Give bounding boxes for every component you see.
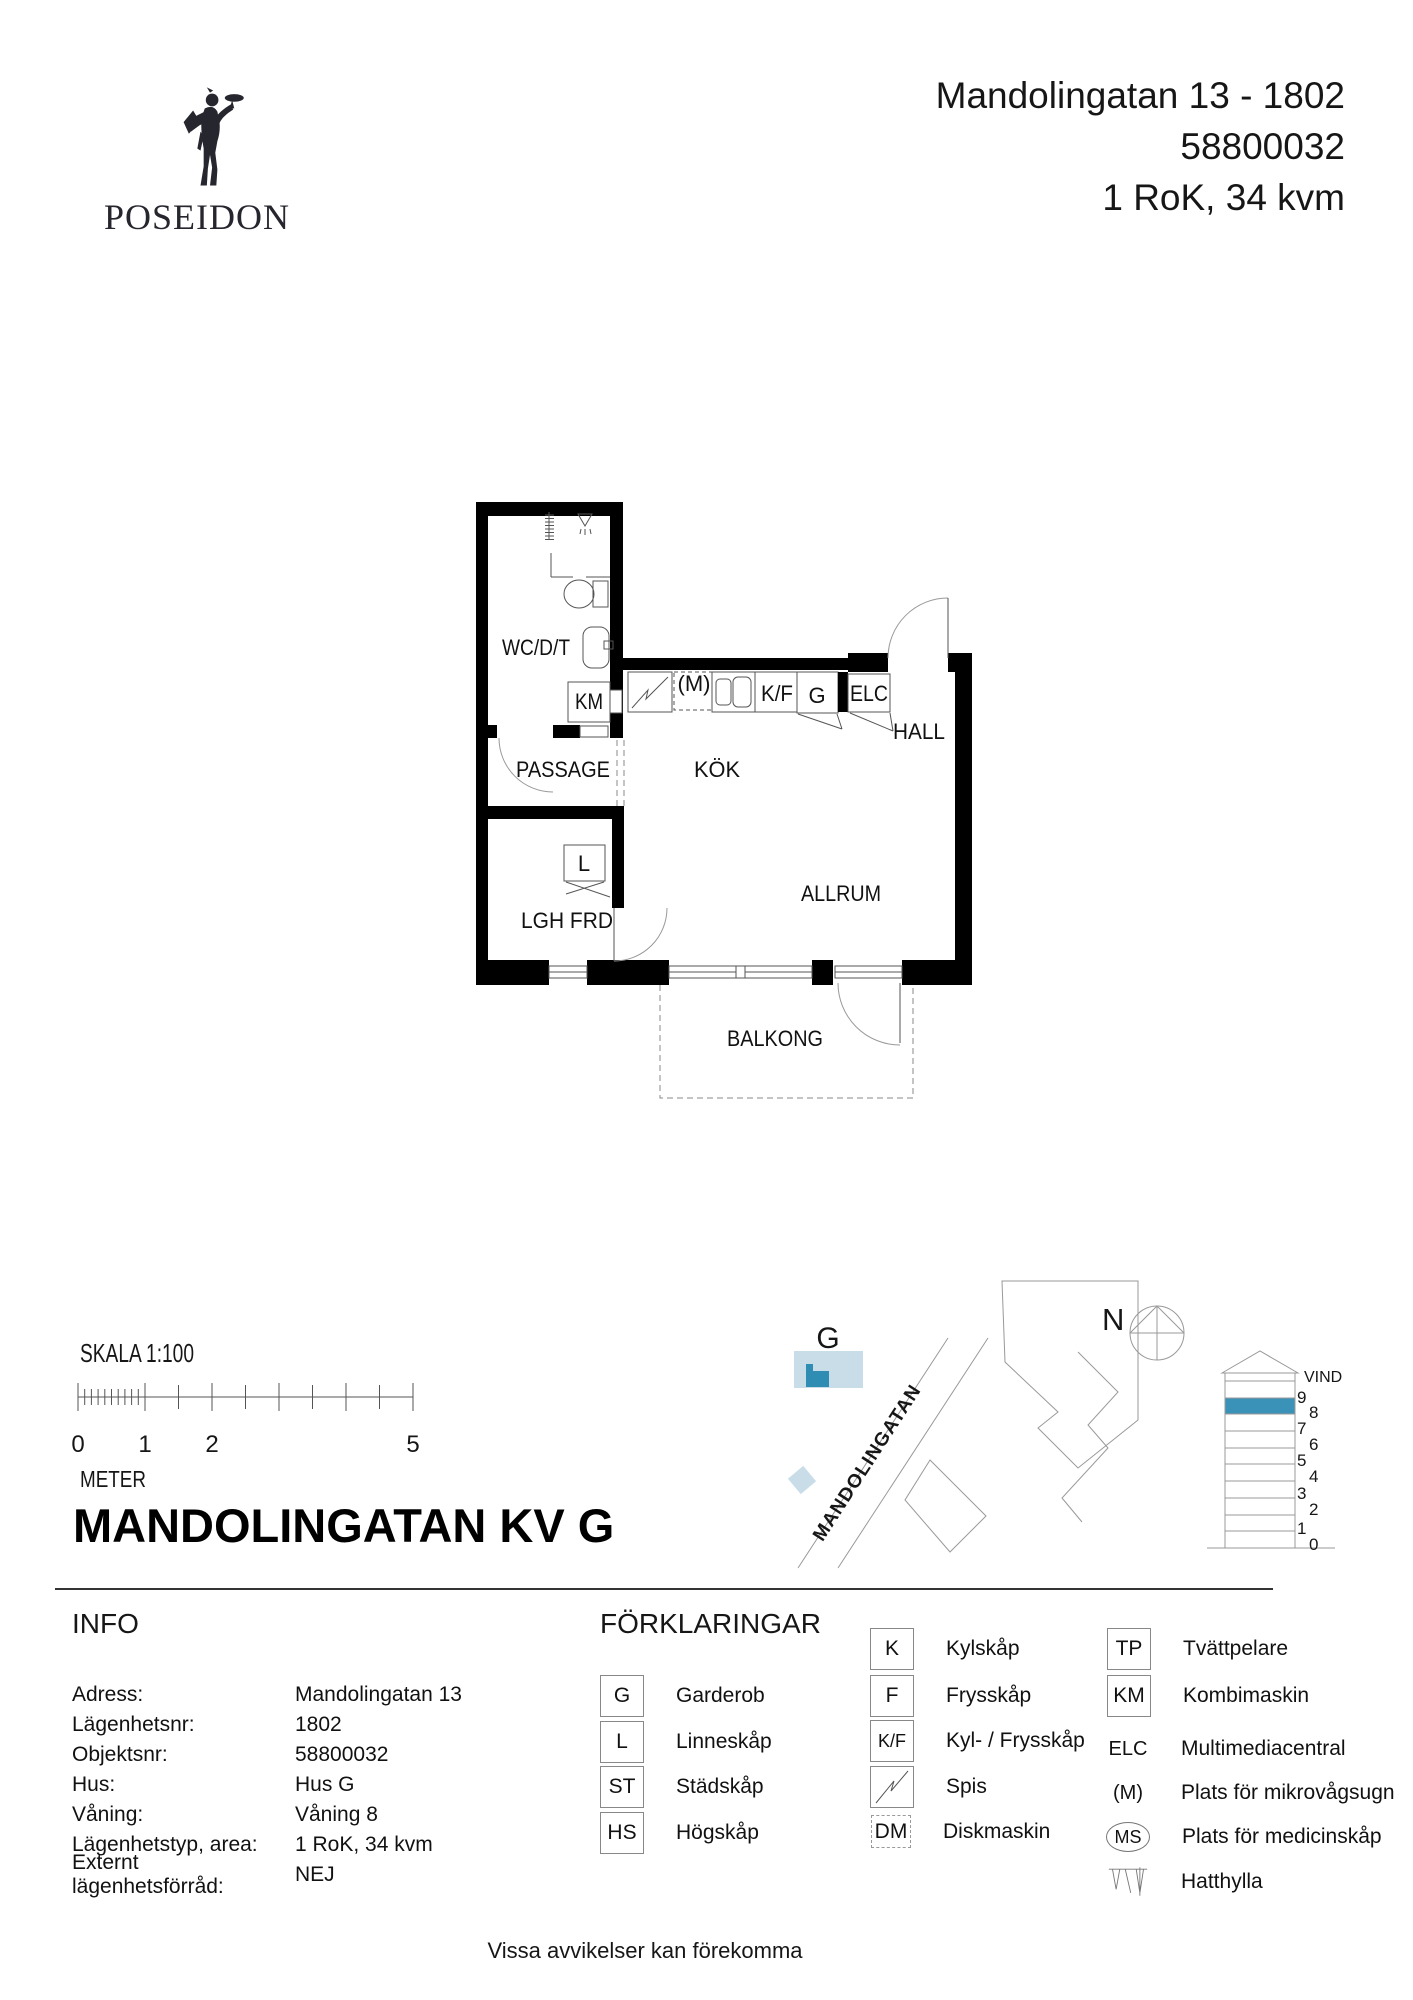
apartment-header: Mandolingatan 13 - 1802 58800032 1 RoK, … <box>936 70 1345 223</box>
floor-number: 9 <box>1297 1388 1306 1407</box>
info-label: Objektsnr: <box>72 1743 295 1767</box>
info-row: Hus:Hus G <box>72 1770 462 1800</box>
legend-label: Kombimaskin <box>1183 1684 1309 1708</box>
legend-label: Multimediacentral <box>1181 1737 1346 1761</box>
floor-number: 8 <box>1309 1403 1318 1422</box>
legend-symbol-hs: HS <box>600 1812 644 1854</box>
legend-label: Kylskåp <box>946 1637 1020 1661</box>
floor-number: 3 <box>1297 1484 1306 1503</box>
hat-shelf-symbol-icon <box>1107 1864 1149 1900</box>
info-value: 1 RoK, 34 kvm <box>295 1833 433 1857</box>
info-row: Adress:Mandolingatan 13 <box>72 1680 462 1710</box>
legend-symbol-g: G <box>600 1675 644 1717</box>
legend-symbol-l: L <box>600 1721 644 1763</box>
legend-symbol-elc: ELC <box>1107 1738 1149 1761</box>
brand-wordmark: POSEIDON <box>92 196 302 238</box>
room-label-l: L <box>578 851 590 876</box>
scale-numbers: 0 1 2 5 <box>71 1431 419 1458</box>
legend-label: Städskåp <box>676 1775 764 1799</box>
info-value: Hus G <box>295 1773 355 1797</box>
info-row: Objektsnr:58800032 <box>72 1740 462 1770</box>
legend-symbol-km: KM <box>1107 1675 1151 1717</box>
legend-heading: FÖRKLARINGAR <box>600 1608 821 1640</box>
legend-item: (M)Plats för mikrovågsugn <box>1107 1781 1395 1805</box>
room-label-g: G <box>808 683 825 708</box>
room-label-kf: K/F <box>761 681 793 706</box>
scale-unit: METER <box>80 1466 146 1492</box>
street-name-label: MANDOLINGATAN <box>809 1381 926 1545</box>
scale-label: SKALA 1:100 <box>80 1338 194 1368</box>
info-label: Våning: <box>72 1803 295 1827</box>
small-building-footprint <box>788 1466 816 1494</box>
scale-number-1: 1 <box>138 1431 151 1458</box>
legend-label: Diskmaskin <box>943 1820 1050 1844</box>
header-address: Mandolingatan 13 - 1802 <box>936 70 1345 121</box>
legend-label: Tvättpelare <box>1183 1637 1288 1661</box>
floor-plan: WC/D/T KM PASSAGE LGH FRD L KÖK (M) K/F … <box>450 480 990 1120</box>
section-divider <box>55 1588 1273 1590</box>
stove-symbol-icon <box>870 1766 914 1808</box>
site-map: MANDOLINGATAN G N VIND 9 8 7 6 5 4 3 <box>580 1278 1360 1578</box>
info-heading: INFO <box>72 1608 139 1640</box>
legend-item: KMKombimaskin <box>1107 1675 1309 1717</box>
legend-item: FFrysskåp <box>870 1675 1031 1717</box>
info-row: Externt lägenhetsförråd:NEJ <box>72 1860 462 1890</box>
legend-item: Hatthylla <box>1107 1864 1263 1900</box>
legend-item: KKylskåp <box>870 1628 1020 1670</box>
scale-number-0: 0 <box>71 1431 84 1458</box>
poseidon-statue-icon <box>172 86 248 190</box>
room-label-allrum: ALLRUM <box>801 881 881 906</box>
legend-symbol-ms: MS <box>1106 1822 1150 1852</box>
room-label-elc: ELC <box>850 681 888 706</box>
legend-item: DMDiskmaskin <box>871 1815 1050 1848</box>
floorplan-document-page: POSEIDON Mandolingatan 13 - 1802 5880003… <box>0 0 1413 2000</box>
scale-number-2: 2 <box>205 1431 218 1458</box>
legend-symbol-kf: K/F <box>870 1720 914 1762</box>
page-title: MANDOLINGATAN KV G <box>73 1498 614 1553</box>
info-row: Lägenhetsnr:1802 <box>72 1710 462 1740</box>
legend-item: K/FKyl- / Frysskåp <box>870 1720 1085 1762</box>
legend-symbol-m: (M) <box>1107 1782 1149 1805</box>
room-label-lghfrd: LGH FRD <box>521 908 613 933</box>
legend-label: Plats för mikrovågsugn <box>1181 1781 1395 1805</box>
legend-label: Kyl- / Frysskåp <box>946 1729 1085 1753</box>
room-label-km: KM <box>575 689 603 714</box>
legend-item: HSHögskåp <box>600 1812 759 1854</box>
legend-label: Plats för medicinskåp <box>1182 1825 1382 1849</box>
floor-number: 4 <box>1309 1467 1318 1486</box>
room-label-kok: KÖK <box>694 757 740 782</box>
legend-label: Spis <box>946 1775 987 1799</box>
floor-number: 1 <box>1297 1519 1306 1538</box>
disclaimer-text: Vissa avvikelser kan förekomma <box>0 1938 1290 1964</box>
legend-item: TPTvättpelare <box>1107 1628 1288 1670</box>
scale-bar: SKALA 1:100 0 1 2 5 METER <box>55 1332 505 1502</box>
elevation-attic-label: VIND <box>1304 1369 1342 1386</box>
legend-symbol-tp: TP <box>1107 1628 1151 1670</box>
floor-number: 5 <box>1297 1451 1306 1470</box>
highlighted-floor-band <box>1225 1398 1295 1414</box>
room-label-passage: PASSAGE <box>516 757 610 782</box>
legend-label: Hatthylla <box>1181 1870 1263 1894</box>
room-label-balkong: BALKONG <box>727 1026 823 1051</box>
legend-symbol-f: F <box>870 1675 914 1717</box>
floor-number: 7 <box>1297 1419 1306 1438</box>
info-value: Mandolingatan 13 <box>295 1683 462 1707</box>
legend-label: Frysskåp <box>946 1684 1031 1708</box>
room-label-wc: WC/D/T <box>502 635 570 660</box>
info-value: NEJ <box>295 1863 335 1887</box>
legend-item: MSPlats för medicinskåp <box>1106 1822 1382 1852</box>
info-table: Adress:Mandolingatan 13 Lägenhetsnr:1802… <box>72 1680 462 1890</box>
legend-item: GGarderob <box>600 1675 765 1717</box>
room-label-hall: HALL <box>893 719 945 744</box>
legend-symbol-st: ST <box>600 1766 644 1808</box>
legend-symbol-k: K <box>870 1628 914 1670</box>
scale-number-5: 5 <box>406 1431 419 1458</box>
header-object-number: 58800032 <box>936 121 1345 172</box>
legend-label: Linneskåp <box>676 1730 772 1754</box>
building-g-label: G <box>816 1322 839 1355</box>
floor-number: 0 <box>1309 1535 1318 1554</box>
room-label-m: (M) <box>678 671 711 696</box>
legend-label: Högskåp <box>676 1821 759 1845</box>
neighbour-building <box>905 1460 986 1552</box>
elevation-floor-numbers: VIND 9 8 7 6 5 4 3 2 1 0 <box>1297 1369 1342 1554</box>
legend-label: Garderob <box>676 1684 765 1708</box>
header-apartment-type: 1 RoK, 34 kvm <box>936 172 1345 223</box>
info-label: Lägenhetsnr: <box>72 1713 295 1737</box>
floor-number: 2 <box>1309 1500 1318 1519</box>
compass-icon <box>1130 1306 1184 1360</box>
legend-item: LLinneskåp <box>600 1721 772 1763</box>
legend-symbol-dm: DM <box>871 1815 911 1848</box>
compass-north-label: N <box>1102 1302 1124 1337</box>
info-label: Externt lägenhetsförråd: <box>72 1851 295 1899</box>
passage-beam-lines <box>617 740 624 806</box>
info-value: Våning 8 <box>295 1803 378 1827</box>
info-row: Våning:Våning 8 <box>72 1800 462 1830</box>
legend-item: STStädskåp <box>600 1766 764 1808</box>
info-label: Hus: <box>72 1773 295 1797</box>
floor-number: 6 <box>1309 1435 1318 1454</box>
info-label: Adress: <box>72 1683 295 1707</box>
legend-item: Spis <box>870 1766 987 1808</box>
info-value: 58800032 <box>295 1743 388 1767</box>
info-value: 1802 <box>295 1713 342 1737</box>
legend-item: ELCMultimediacentral <box>1107 1737 1346 1761</box>
